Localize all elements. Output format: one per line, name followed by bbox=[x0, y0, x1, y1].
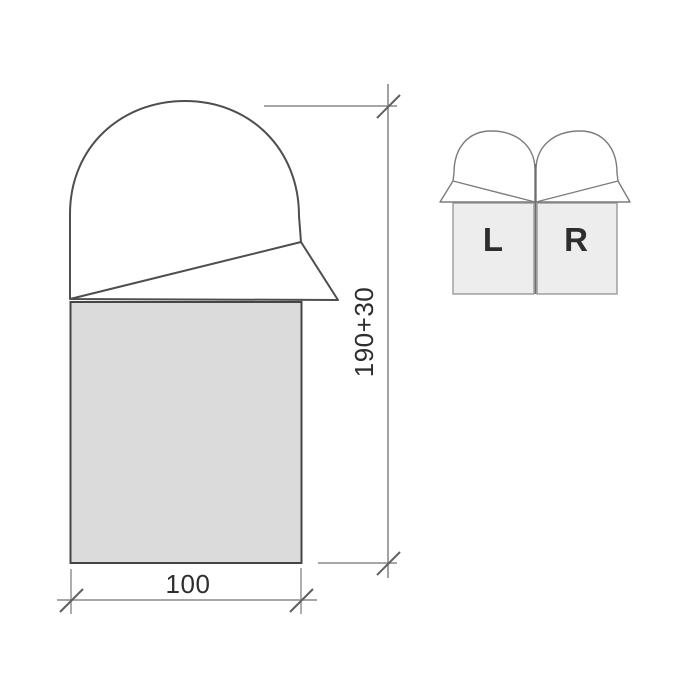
hood-dome-outline bbox=[70, 101, 338, 300]
pair-right-bag: R bbox=[536, 131, 630, 294]
pair-figure: L R bbox=[440, 131, 630, 294]
diagram-page: 190+30 100 L R bbox=[0, 0, 700, 700]
pair-left-hood-outline bbox=[440, 131, 535, 202]
pair-left-bag: L bbox=[440, 131, 535, 294]
pair-left-bag-label: L bbox=[483, 221, 503, 258]
pair-right-bag-label: R bbox=[564, 221, 588, 258]
pair-right-hood-outline bbox=[536, 131, 630, 202]
main-figure bbox=[70, 101, 338, 563]
width-dimension-label: 100 bbox=[166, 569, 211, 599]
height-dimension-label: 190+30 bbox=[349, 287, 379, 377]
sleeping-bag-diagram: 190+30 100 L R bbox=[0, 0, 700, 700]
main-bag-body bbox=[71, 302, 302, 563]
width-dimension: 100 bbox=[57, 568, 317, 614]
